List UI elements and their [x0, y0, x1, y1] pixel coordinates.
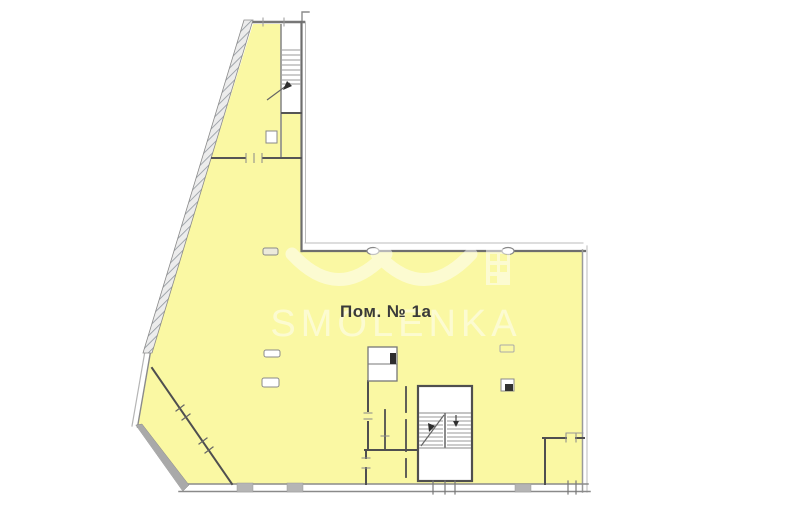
radiator	[262, 378, 279, 387]
room-label: Пом. № 1а	[340, 302, 431, 322]
upper-stair-shaft	[281, 24, 302, 113]
floor-plan-page: SMOLENKA Пом. № 1а	[0, 0, 800, 510]
floor-plan-drawing: SMOLENKA	[0, 0, 800, 510]
radiator	[264, 350, 280, 357]
floor-polygon	[138, 24, 583, 484]
smolenka-building-icon	[486, 249, 510, 285]
wall-box	[266, 131, 277, 143]
floor-area	[138, 24, 583, 484]
utility-box	[368, 347, 397, 381]
vent-shaft	[501, 379, 514, 391]
radiator	[263, 248, 278, 255]
